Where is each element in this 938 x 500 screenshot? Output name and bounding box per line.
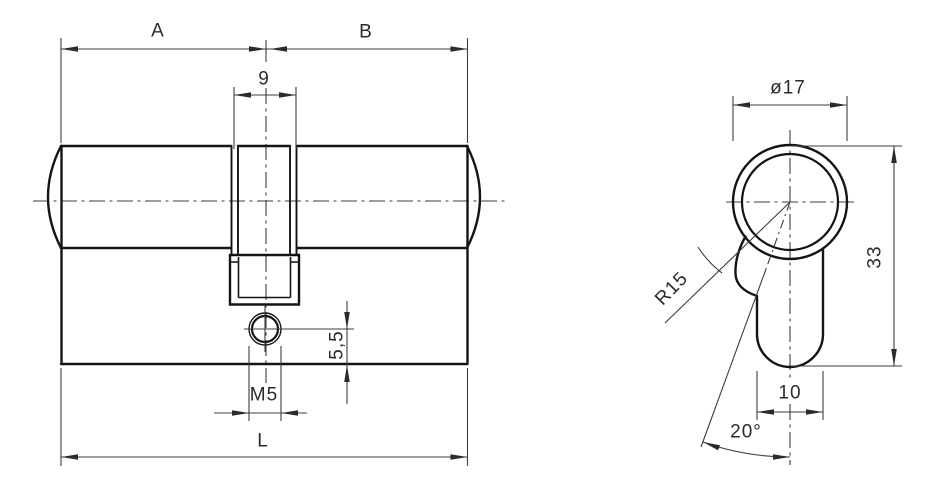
arrowhead [61,46,78,52]
left-dome-arc [48,146,61,248]
arrowhead [830,102,847,108]
arrowhead [249,46,266,52]
arrowhead [270,46,287,52]
dim-label-a: A [151,21,165,42]
dim-label-m5: M5 [250,385,278,406]
dim-label-length: L [257,431,269,452]
drawing-canvas: A B 9 M5 5,5 [0,0,938,500]
ext-lines-m5 [249,346,281,421]
dim-label-cam-radius: R15 [651,268,692,310]
technical-drawing: A B 9 M5 5,5 [0,0,938,500]
cam-box [230,255,299,305]
dim-label-b: B [359,22,373,43]
dim-screw-thread: M5 [214,346,307,421]
arrowhead [703,442,720,450]
arrowhead [757,409,774,415]
arrowhead [891,146,897,163]
arrowhead [733,102,750,108]
cam-angle-arc [703,442,790,457]
arrowhead [344,365,350,382]
arrowhead [281,410,298,416]
arrowhead [773,454,790,460]
arrowhead [279,92,296,98]
dim-label-cam-angle: 20° [730,422,762,443]
dim-label-width-10: 10 [778,383,801,404]
dim-b: B [270,22,468,52]
arrowhead [234,92,251,98]
dim-label-screw-offset: 5,5 [327,330,348,359]
cam-box-inner-lines [231,257,298,298]
arrowhead [806,409,823,415]
dim-slot-width: 9 [234,69,296,149]
dim-label-diameter: ø17 [770,78,806,99]
dim-label-slot-width: 9 [258,69,270,90]
side-view: ø17 33 10 20° [651,78,902,465]
arrowhead [344,312,350,329]
dim-label-height-33: 33 [865,245,886,268]
cam-angle-line [701,269,766,447]
right-dome-arc [467,146,480,248]
radius-sweep-arc [698,247,722,273]
arrowhead [891,349,897,366]
arrowhead [61,454,78,460]
front-view: A B 9 M5 5,5 [33,21,506,466]
front-centerlines [33,88,506,383]
ext-lines-ab [61,38,468,143]
dim-cam-angle: 20° [701,202,790,460]
dim-total-length: L [61,368,468,466]
arrowhead [451,454,468,460]
radius-line [665,203,789,323]
side-centerlines [726,130,856,465]
arrowhead [232,410,249,416]
arrowhead [451,46,468,52]
